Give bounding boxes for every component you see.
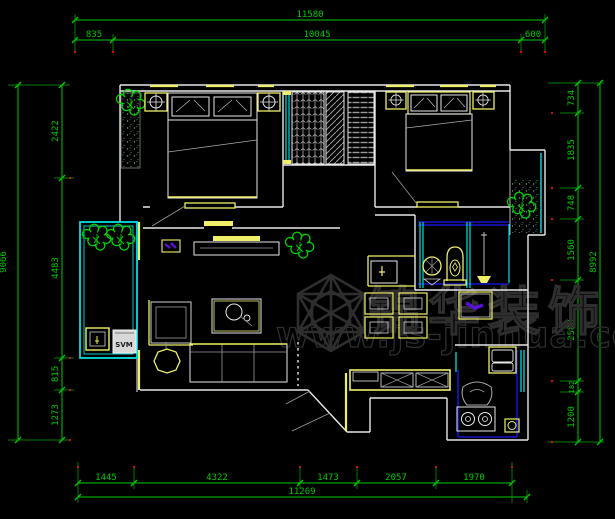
toilet bbox=[444, 247, 466, 285]
shower bbox=[477, 232, 491, 283]
door-swing bbox=[392, 172, 417, 204]
bathroom bbox=[368, 222, 509, 288]
lamp-icon bbox=[260, 93, 278, 111]
nightstand bbox=[258, 93, 280, 111]
entry-door-swing bbox=[286, 391, 330, 431]
lamp-icon bbox=[388, 92, 403, 107]
dim-right-seg1: 1835 bbox=[567, 139, 577, 161]
wardrobe-zone bbox=[283, 91, 374, 164]
coffee-table bbox=[212, 299, 261, 333]
living-room bbox=[149, 221, 314, 386]
washing-machine: SVM bbox=[113, 330, 136, 353]
vanity-cabinet bbox=[368, 256, 415, 286]
dim-bottom-total: 11269 bbox=[288, 487, 315, 497]
dim-left-outer-total: 9066 bbox=[0, 251, 9, 273]
kitchen-stove bbox=[457, 407, 495, 431]
dimension-left: 9066 2422 4483 815 1273 bbox=[0, 82, 74, 443]
dim-bottom-seg1: 4322 bbox=[206, 473, 228, 483]
dim-top-seg1: 10045 bbox=[303, 30, 330, 40]
tick-markers-bottom bbox=[77, 466, 513, 468]
dim-bottom-seg2: 1473 bbox=[317, 473, 339, 483]
speaker bbox=[162, 240, 180, 252]
wash-basin bbox=[423, 257, 441, 285]
cad-floorplan-viewport: 11580 835 10045 600 9066 2422 4483 815 1… bbox=[0, 0, 615, 519]
dim-bottom-seg0: 1445 bbox=[95, 473, 117, 483]
wardrobe-hanging bbox=[292, 92, 324, 164]
floorplan-drawing: 11580 835 10045 600 9066 2422 4483 815 1… bbox=[0, 0, 615, 519]
dim-bottom-seg4: 1970 bbox=[463, 473, 485, 483]
lamp-icon bbox=[475, 92, 490, 107]
door-panel bbox=[185, 203, 235, 208]
dim-right-seg3: 1560 bbox=[567, 239, 577, 261]
dim-top-total: 11580 bbox=[296, 10, 323, 20]
door-panel bbox=[417, 202, 458, 207]
dim-left-seg1: 4483 bbox=[51, 257, 61, 279]
side-table-round bbox=[154, 349, 180, 373]
floor-drain bbox=[86, 328, 109, 350]
dimension-right: 734 1835 748 1560 2588 182 1200 8992 bbox=[548, 80, 604, 445]
teapot-icon bbox=[226, 304, 242, 320]
watermark-url-text: www.js-jinhua.com bbox=[276, 315, 615, 356]
watermark: 锦华装饰 www.js-jinhua.com bbox=[276, 275, 615, 356]
passage-threshold bbox=[204, 221, 233, 226]
nightstand bbox=[473, 92, 494, 109]
dim-bottom-seg3: 2057 bbox=[385, 473, 407, 483]
armchair bbox=[149, 300, 193, 345]
double-bed bbox=[406, 92, 472, 171]
nightstand bbox=[145, 93, 167, 111]
tick-markers-left bbox=[69, 177, 71, 441]
shoe-cabinet bbox=[350, 370, 450, 390]
nightstand bbox=[386, 92, 406, 109]
tick-markers-top bbox=[74, 51, 546, 53]
dim-right-outer-total: 8992 bbox=[589, 251, 599, 273]
dim-right-seg0: 734 bbox=[567, 90, 577, 106]
double-bed bbox=[168, 93, 257, 198]
range-hood bbox=[462, 382, 492, 405]
wardrobe-shelves bbox=[348, 92, 374, 164]
dim-right-seg5: 182 bbox=[568, 381, 576, 394]
dim-left-seg0: 2422 bbox=[51, 120, 61, 142]
wardrobe-hatch bbox=[326, 92, 344, 164]
sofa bbox=[190, 344, 287, 382]
dim-right-seg6: 1200 bbox=[567, 406, 577, 428]
balcony: SVM bbox=[80, 222, 137, 358]
bay-window bbox=[507, 153, 542, 233]
plant-icon bbox=[285, 232, 313, 258]
dim-top-seg2: 600 bbox=[525, 30, 541, 40]
dimension-top: 11580 835 10045 600 bbox=[72, 10, 548, 53]
dimension-bottom: 1445 4322 1473 2057 1970 11269 bbox=[75, 462, 530, 503]
plant-icon bbox=[82, 224, 110, 250]
dim-left-seg3: 1273 bbox=[51, 404, 61, 426]
tick-markers-right bbox=[551, 112, 553, 443]
window bbox=[286, 93, 289, 163]
tv-cabinet bbox=[194, 236, 279, 255]
dim-top-seg0: 835 bbox=[86, 30, 102, 40]
dim-left-seg2: 815 bbox=[51, 366, 61, 382]
lamp-icon bbox=[147, 93, 165, 111]
bedroom-left bbox=[116, 89, 280, 226]
kitchen bbox=[456, 347, 524, 437]
dim-right-seg2: 748 bbox=[567, 195, 577, 211]
tv bbox=[194, 242, 279, 255]
door-swing bbox=[152, 206, 185, 226]
washing-machine-label: SVM bbox=[115, 341, 132, 349]
bedroom-right bbox=[386, 92, 542, 233]
